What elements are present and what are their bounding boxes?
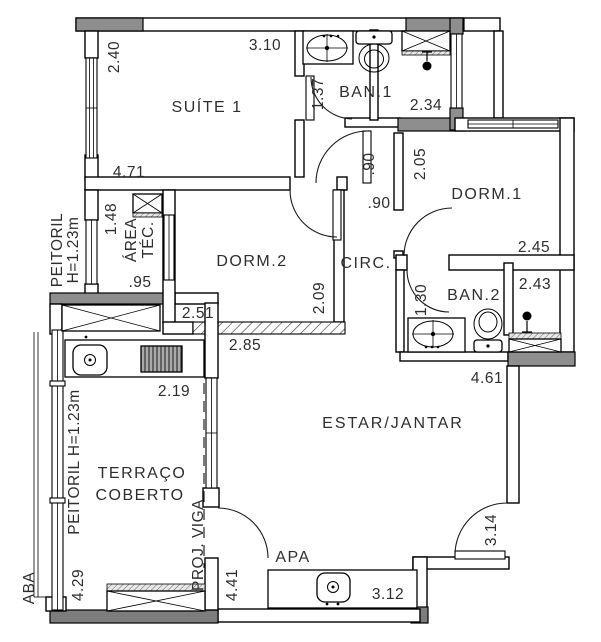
- peitoril-upper-line2: H=1.23m: [65, 217, 82, 284]
- dim-251: 2.51: [182, 305, 214, 322]
- floor-plan-page: SUÍTE 1 3.10 2.40 4.71 BAN.1 1.37 2.34 D…: [0, 0, 601, 642]
- aba-label: ABA: [21, 572, 38, 605]
- door-dorm2: [290, 190, 341, 240]
- dim-461: 4.61: [471, 370, 503, 387]
- terrace-counter: [65, 336, 204, 377]
- dim-245: 2.45: [518, 239, 550, 256]
- room-label-terraco-line2: COBERTO: [95, 487, 184, 504]
- exterior-wall-dark: [50, 610, 218, 623]
- peitoril-terrace: PEITORIL H=1.23m: [66, 389, 83, 534]
- ban2-toilet: [474, 309, 502, 352]
- dim-441: 4.41: [224, 569, 241, 601]
- room-label-dorm2: DORM.2: [216, 253, 287, 270]
- shaft-ban2: [509, 333, 561, 352]
- room-label-ban1: BAN.1: [339, 84, 393, 101]
- area-tec-line2: TÉC.: [140, 221, 157, 258]
- dim-090-vertical: .90: [361, 152, 378, 175]
- window-dorm1-top: [468, 120, 558, 128]
- window-area-tec-left: [86, 220, 97, 284]
- window-area-tec-door: [164, 215, 174, 280]
- room-label-terraco-line1: TERRAÇO: [98, 465, 187, 482]
- door-terrace: [218, 508, 268, 558]
- dim-130: 1.30: [413, 284, 430, 316]
- dim-095: .95: [128, 274, 151, 291]
- peitoril-upper-line1: PEITORIL: [49, 213, 66, 287]
- dim-314: 3.14: [483, 514, 500, 546]
- shaft-left: [62, 305, 160, 331]
- dim-429: 4.29: [70, 569, 87, 601]
- window-terrace-partition: [206, 378, 217, 488]
- floor-plan-svg: SUÍTE 1 3.10 2.40 4.71 BAN.1 1.37 2.34 D…: [0, 0, 601, 642]
- dim-310: 3.10: [249, 37, 281, 54]
- dim-234: 2.34: [410, 97, 442, 114]
- concrete-wall: [50, 293, 175, 304]
- dim-219: 2.19: [158, 383, 190, 400]
- ban2-shower-head: [522, 312, 532, 333]
- dim-137: 1.37: [310, 78, 327, 110]
- concrete-pillar: [508, 352, 575, 366]
- room-label-circ: CIRC.: [340, 255, 391, 272]
- aba-eave-line: [34, 332, 46, 597]
- window-suite-left: [86, 58, 97, 158]
- room-label-ban2: BAN.2: [447, 287, 501, 304]
- room-label-suite1: SUÍTE 1: [172, 97, 243, 116]
- dim-471: 4.71: [113, 164, 145, 181]
- grill: [141, 346, 182, 372]
- dim-148: 1.48: [103, 203, 120, 235]
- room-label-estar: ESTAR/JANTAR: [322, 415, 464, 432]
- window-shower-column: [451, 34, 462, 108]
- concrete-pillar: [76, 18, 143, 31]
- shaft-area-tec: [133, 194, 162, 217]
- ban2-sink: [408, 318, 465, 352]
- concrete-pillar: [450, 18, 463, 34]
- area-tec-line1: ÁREA: [123, 218, 140, 262]
- dim-209: 2.09: [311, 282, 328, 314]
- room-label-apa: APA: [275, 549, 310, 566]
- dim-243: 2.43: [519, 276, 551, 293]
- dim-312: 3.12: [372, 586, 404, 603]
- dim-240: 2.40: [106, 41, 123, 73]
- room-label-dorm1: DORM.1: [451, 186, 522, 203]
- dim-285: 2.85: [229, 337, 261, 354]
- door-dorm1: [404, 208, 452, 256]
- dim-205: 2.05: [412, 148, 429, 180]
- proj-viga-label: PROJ. VIGA: [190, 499, 207, 591]
- dim-090-horizontal: .90: [367, 195, 390, 212]
- ban1-sink: [303, 31, 353, 64]
